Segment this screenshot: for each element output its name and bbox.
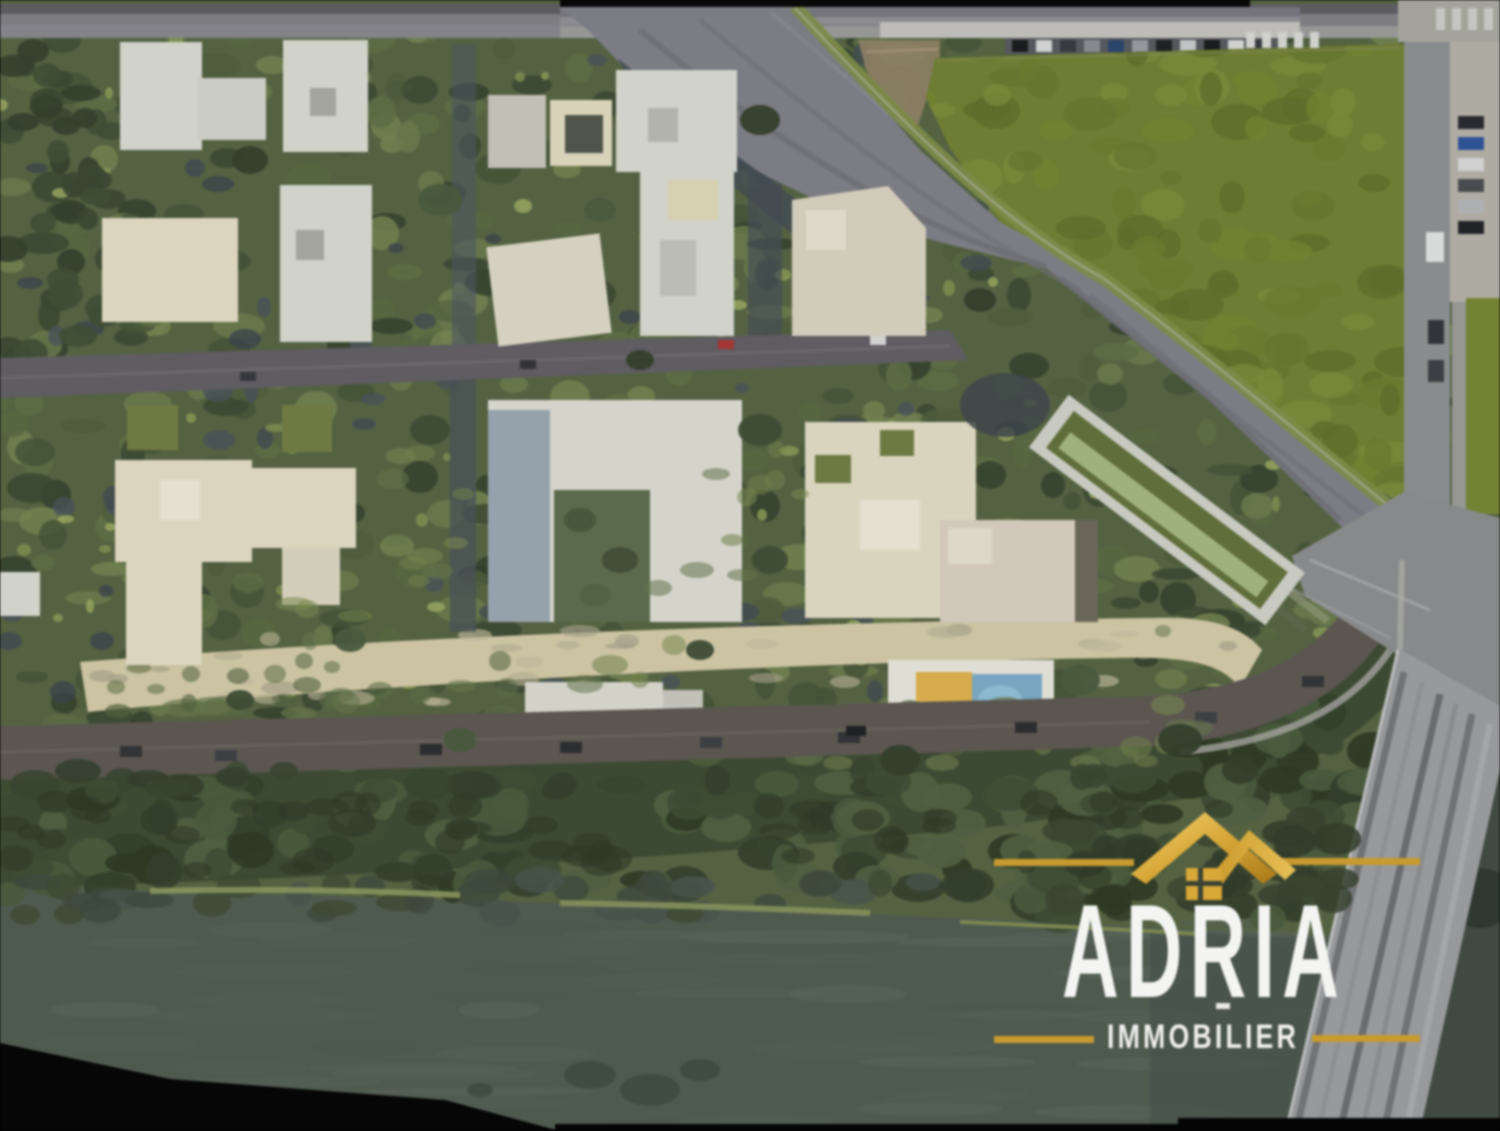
svg-text:IMMOBILIER: IMMOBILIER <box>1107 1018 1299 1056</box>
svg-text:ADRIA: ADRIA <box>1062 878 1346 1026</box>
